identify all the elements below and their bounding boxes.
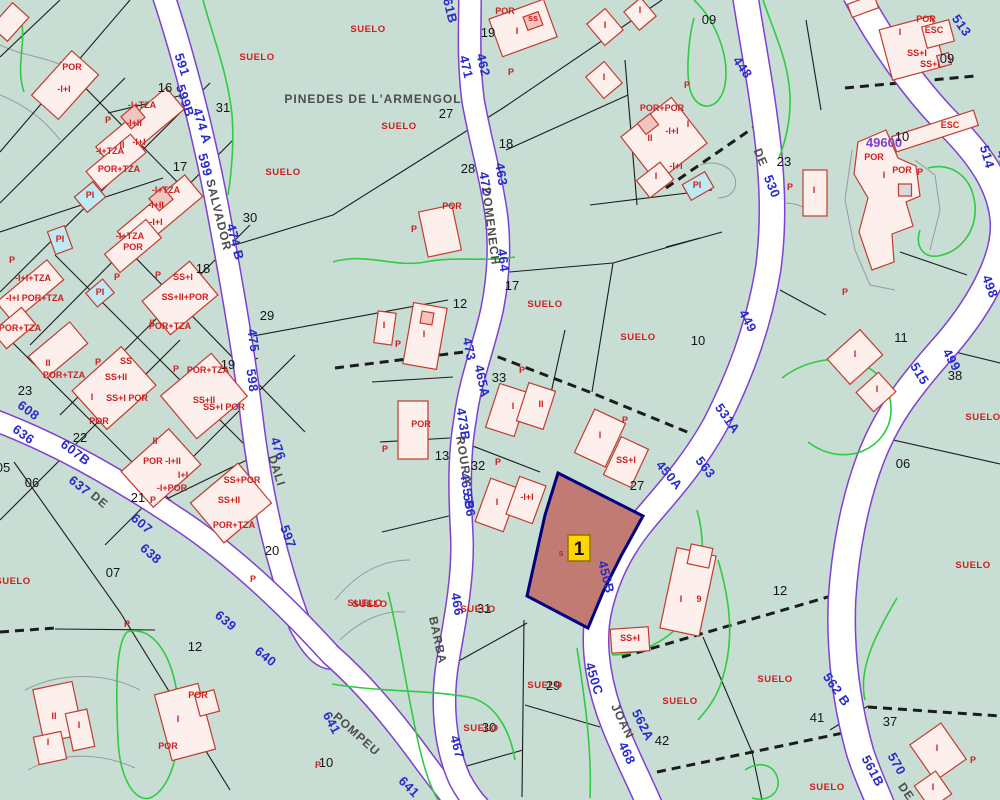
p-marker-label: P	[173, 364, 179, 374]
building-use-label: PI	[693, 180, 702, 190]
building-use-label: ESC	[925, 25, 944, 35]
cadastral-map[interactable]: 591599B474 A599474 B47559847659760863660…	[0, 0, 1000, 800]
parcel-number-label: 18	[196, 261, 210, 276]
building-use-label: -I+POR	[157, 483, 188, 493]
p-marker-label: P	[114, 272, 120, 282]
building-use-label: ss	[528, 13, 538, 23]
building-use-label: POR+TZA	[0, 323, 42, 333]
building-use-label: I	[177, 714, 180, 724]
building-use-label: I	[604, 20, 607, 30]
p-marker-label: P	[155, 270, 161, 280]
p-marker-label: P	[382, 444, 388, 454]
building-use-label: I	[932, 782, 935, 792]
building-use-label: SS+II	[105, 372, 127, 382]
building-use-label: I	[78, 720, 81, 730]
building-annex	[899, 184, 912, 196]
building-use-label: I	[383, 320, 386, 330]
p-marker-label: P	[787, 182, 793, 192]
p-marker-label: P	[970, 755, 976, 765]
building-use-label: POR	[495, 6, 515, 16]
building-use-label: I+I	[178, 470, 188, 480]
suelo-label: SUELO	[239, 52, 274, 63]
building-use-label: I	[854, 349, 857, 359]
building-use-label: I	[423, 329, 426, 339]
parcel-number-label: 30	[243, 210, 257, 225]
building-use-label: POR+TZA	[98, 164, 141, 174]
building-use-label: SS+I	[620, 633, 640, 643]
parcel-number-label: 23	[18, 383, 32, 398]
building-use-label: I	[936, 743, 939, 753]
building-use-label: POR	[892, 165, 912, 175]
parcel-number-label: 13	[435, 448, 449, 463]
building-use-label: -I+I	[520, 492, 533, 502]
building-use-label: I	[599, 430, 602, 440]
suelo-label: SUELO	[527, 299, 562, 310]
parcel-number-label: 32	[471, 458, 485, 473]
suelo-label: SUELO	[0, 576, 31, 587]
building	[687, 544, 713, 568]
p-marker-label: P	[411, 224, 417, 234]
suelo-label: SUELO	[965, 412, 1000, 423]
building-use-label: -I+TZA	[116, 231, 145, 241]
p-marker-label: P	[495, 457, 501, 467]
building-use-label: I	[687, 119, 690, 129]
building-use-label: SS+II+POR	[161, 292, 209, 302]
building-use-label: II	[152, 436, 157, 446]
suelo-label: SUELO	[352, 599, 387, 610]
cadastral-map-viewport[interactable]: 49600 591599B474 A599474 B47559847659760…	[0, 0, 1000, 800]
building-use-label: I	[680, 594, 683, 604]
building-use-label: -I+TZA	[152, 185, 181, 195]
building-use-label: POR	[864, 152, 884, 162]
parcel-number-label: 22	[73, 430, 87, 445]
building-use-label: SS+I	[907, 48, 927, 58]
building-use-label: POR	[123, 242, 143, 252]
suelo-label: SUELO	[620, 332, 655, 343]
p-marker-label: P	[622, 415, 628, 425]
building-annex	[420, 311, 434, 325]
p-marker-label: P	[519, 365, 525, 375]
parcel-number-label: 41	[810, 710, 824, 725]
building-use-label: I	[899, 27, 902, 37]
parcel-number-label: 38	[948, 368, 962, 383]
building-use-label: POR	[158, 741, 178, 751]
p-marker-label: P	[315, 760, 321, 770]
building-use-label: SS+I POR	[106, 393, 148, 403]
suelo-label: SUELO	[662, 696, 697, 707]
street-number-label: 598	[243, 368, 261, 393]
building-use-label: SS+POR	[224, 475, 261, 485]
parcel-number-label: 42	[655, 733, 669, 748]
p-marker-label: P	[95, 357, 101, 367]
building-use-label: PI	[86, 190, 95, 200]
building-use-label: -I+I	[57, 84, 70, 94]
parcel-number-label: 37	[883, 714, 897, 729]
cadastral-reference-label: 49600	[866, 135, 902, 150]
building-use-label: SS+I POR	[203, 402, 245, 412]
building-use-label: SS+I	[920, 59, 940, 69]
building-use-label: II	[45, 358, 50, 368]
building-use-label: I	[883, 170, 886, 180]
parcel-number-label: 21	[131, 490, 145, 505]
parcel-number-label: 06	[25, 475, 39, 490]
building-use-label: II	[51, 711, 56, 721]
building-use-label: I	[876, 384, 879, 394]
building-use-label: -I+II	[126, 118, 142, 128]
p-marker-label: P	[395, 339, 401, 349]
parcel-number-label: 09	[702, 12, 716, 27]
parcel-number-label: 23	[777, 154, 791, 169]
building-use-label: I	[496, 497, 499, 507]
parcel-number-label: 27	[630, 478, 644, 493]
parcel-number-label: 33	[492, 370, 506, 385]
parcel-number-label: 28	[461, 161, 475, 176]
p-marker-label: P	[684, 80, 690, 90]
building-use-label: POR	[411, 419, 431, 429]
suelo-label: SUELO	[527, 680, 562, 691]
p-marker-label: P	[508, 67, 514, 77]
parcel-number-label: 31	[216, 100, 230, 115]
building-use-label: -I+I	[669, 161, 682, 171]
building-use-label: II	[119, 140, 124, 150]
parcel-number-label: 17	[505, 278, 519, 293]
suelo-label: SUELO	[460, 604, 495, 615]
p-marker-label: P	[150, 495, 156, 505]
building-use-label: SS	[120, 356, 132, 366]
p-marker-label: P	[9, 255, 15, 265]
parcel-number-label: 19	[481, 25, 495, 40]
suelo-label: SUELO	[757, 674, 792, 685]
building-use-label: POR	[188, 690, 208, 700]
building-use-label: -I+TZA	[128, 100, 157, 110]
building-use-label: -I+I	[132, 137, 145, 147]
p-marker-label: P	[250, 574, 256, 584]
building-use-label: SS+I	[173, 272, 193, 282]
building-use-label: POR+TZA	[187, 365, 230, 375]
building-use-label: -I+II	[148, 200, 164, 210]
building-use-label: -I+I+TZA	[15, 273, 52, 283]
building-use-label: I	[47, 737, 50, 747]
p-marker-label: P	[917, 167, 923, 177]
parcel-marker-number: 1	[574, 539, 585, 560]
building-use-label: 9	[696, 594, 701, 604]
building-use-label: I	[655, 171, 658, 181]
p-marker-label: P	[842, 287, 848, 297]
suelo-label: SUELO	[955, 560, 990, 571]
building-use-label: POR -I+II	[143, 456, 181, 466]
parcel-number-label: 27	[439, 106, 453, 121]
parcel-number-label: 12	[453, 296, 467, 311]
building-use-label: II	[647, 133, 652, 143]
parcel-number-label: 06	[896, 456, 910, 471]
parcel-number-label: 12	[773, 583, 787, 598]
parcel-number-label: 07	[106, 565, 120, 580]
parcel-number-label: 18	[499, 136, 513, 151]
building	[398, 401, 428, 459]
building-use-label: ESC	[941, 120, 960, 130]
parcel-number-label: 09	[940, 51, 954, 66]
parcel-number-label: 20	[265, 543, 279, 558]
parcel-number-label: 11	[894, 330, 908, 345]
parcel-number-label: 10	[691, 333, 705, 348]
building-use-label: I	[603, 72, 606, 82]
building-use-label: PI	[56, 234, 65, 244]
small-red-mark: s	[558, 548, 563, 558]
building-use-label: I	[91, 392, 94, 402]
building-use-label: I	[512, 401, 515, 411]
building-use-label: POR+POR	[640, 103, 685, 113]
p-marker-label: P	[105, 115, 111, 125]
parcel-number-label: 16	[158, 80, 172, 95]
building-use-label: -I+I	[665, 126, 678, 136]
building-use-label: POR+TZA	[43, 370, 86, 380]
parcel-number-label: 29	[260, 308, 274, 323]
building-use-label: I	[639, 5, 642, 15]
building-use-label: POR	[442, 201, 462, 211]
p-marker-label: P	[124, 619, 130, 629]
parcel-number-label: 12	[188, 639, 202, 654]
suelo-label: SUELO	[463, 723, 498, 734]
building-use-label: POR	[916, 14, 936, 24]
building-use-label: -I+I	[149, 217, 162, 227]
building-use-label: PI	[96, 287, 105, 297]
building-use-label: I	[813, 185, 816, 195]
suelo-label: SUELO	[809, 782, 844, 793]
suelo-label: SUELO	[265, 167, 300, 178]
building-use-label: POR	[89, 416, 109, 426]
street-name-label: PINEDES DE L'ARMENGOL	[284, 92, 461, 106]
suelo-label: SUELO	[381, 121, 416, 132]
building-use-label: POR+TZA	[213, 520, 256, 530]
street-number-label: 475	[244, 328, 262, 353]
building-use-label: -I+I POR+TZA	[6, 293, 65, 303]
building-use-label: SS+I	[616, 455, 636, 465]
suelo-label: SUELO	[350, 24, 385, 35]
parcel-number-label: 05	[0, 460, 10, 475]
parcel-number-label: 17	[173, 159, 187, 174]
building	[33, 731, 66, 764]
building-use-label: POR+TZA	[149, 321, 192, 331]
building-use-label: POR	[62, 62, 82, 72]
building-use-label: SS+II	[218, 495, 240, 505]
building-use-label: I	[516, 26, 519, 36]
building-use-label: II	[538, 399, 543, 409]
